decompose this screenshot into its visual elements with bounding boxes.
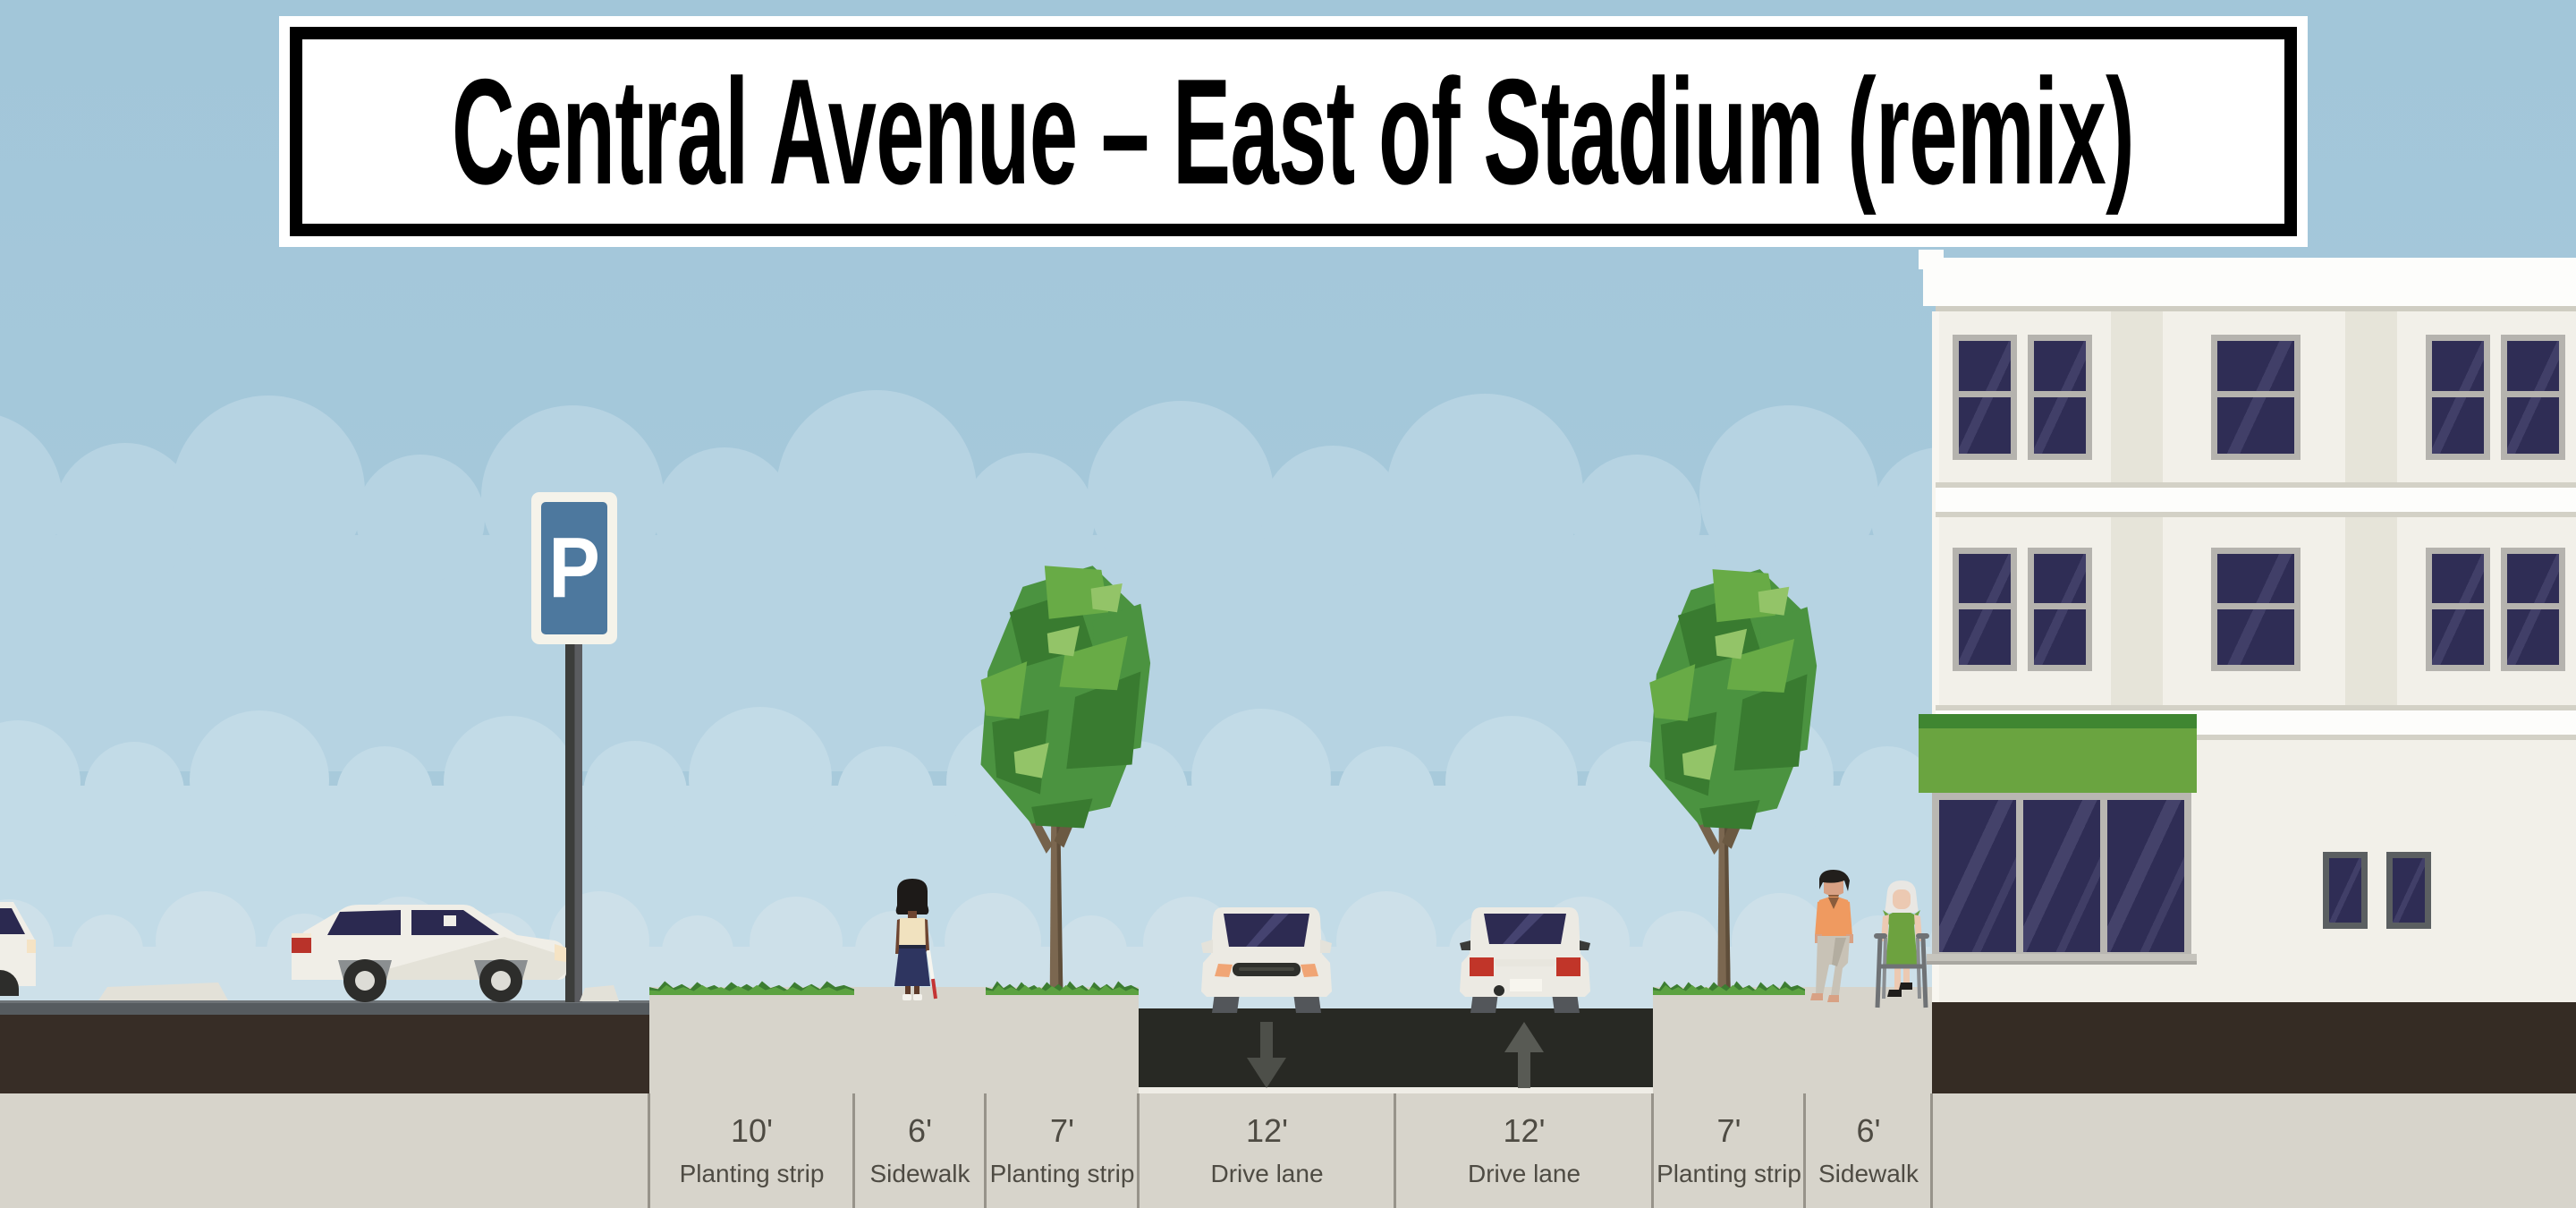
segment-name-label: Drive lane <box>1468 1161 1580 1187</box>
storefront-sill <box>1927 954 2197 965</box>
building-small-window <box>2386 852 2431 929</box>
sidewalk-ground-right <box>1653 987 1932 1093</box>
underground-left <box>0 1015 649 1093</box>
segment-cell-planting-strip[interactable]: 10' Planting strip <box>649 1093 854 1208</box>
segment-width-label: 7' <box>1050 1115 1074 1147</box>
building-window <box>2501 335 2565 460</box>
building-window <box>2028 548 2092 671</box>
parking-sign-letter: P <box>548 525 600 611</box>
segment-width-label: 12' <box>1246 1115 1288 1147</box>
segment-name-label: Planting strip <box>990 1161 1135 1187</box>
segment-cell-sidewalk[interactable]: 6' Sidewalk <box>1805 1093 1932 1208</box>
segment-cell-drive-lane[interactable]: 12' Drive lane <box>1139 1093 1395 1208</box>
segment-width-label: 10' <box>731 1115 773 1147</box>
segment-name-label: Planting strip <box>680 1161 825 1187</box>
segment-width-label: 12' <box>1504 1115 1546 1147</box>
building-window <box>2211 548 2301 671</box>
building-small-window <box>2323 852 2368 929</box>
awning <box>1919 728 2197 793</box>
segment-width-label: 6' <box>908 1115 932 1147</box>
roadway-base-line <box>1139 1087 1653 1093</box>
building-window <box>2211 335 2301 460</box>
segment-cell-planting-strip[interactable]: 7' Planting strip <box>1653 1093 1805 1208</box>
street-name-banner[interactable]: Central Avenue – East of Stadium (remix) <box>279 16 2308 247</box>
building-window <box>2501 548 2565 671</box>
parking-sign: P <box>531 492 617 644</box>
segment-name-label: Planting strip <box>1657 1161 1801 1187</box>
building-roof <box>1923 258 2576 306</box>
building-window <box>2426 548 2490 671</box>
segment-name-label: Drive lane <box>1210 1161 1323 1187</box>
building-window <box>2426 335 2490 460</box>
segment-name-label: Sidewalk <box>869 1161 970 1187</box>
segment-cell-sidewalk[interactable]: 6' Sidewalk <box>854 1093 986 1208</box>
sidewalk-ground-left <box>649 987 1139 1093</box>
street-name-text: Central Avenue – East of Stadium (remix) <box>453 46 2135 218</box>
street-name-border: Central Avenue – East of Stadium (remix) <box>290 27 2297 236</box>
street-section-app: P <box>0 0 2576 1208</box>
underground-right <box>1932 1002 2576 1093</box>
segment-width-label: 7' <box>1717 1115 1741 1147</box>
segment-name-label: Sidewalk <box>1818 1161 1919 1187</box>
building-window <box>1953 335 2017 460</box>
segment-cell-planting-strip[interactable]: 7' Planting strip <box>986 1093 1139 1208</box>
sign-pole <box>565 641 582 1002</box>
roadway-asphalt <box>1139 1008 1653 1087</box>
building-floor-band <box>1936 482 2576 517</box>
segment-cell-drive-lane[interactable]: 12' Drive lane <box>1395 1093 1653 1208</box>
building-window <box>2028 335 2092 460</box>
storefront-window <box>1932 793 2191 959</box>
segment-width-label: 6' <box>1857 1115 1881 1147</box>
awning-valance <box>1919 714 2197 728</box>
building-window <box>1953 548 2017 671</box>
parking-lot-surface <box>0 1000 649 1015</box>
